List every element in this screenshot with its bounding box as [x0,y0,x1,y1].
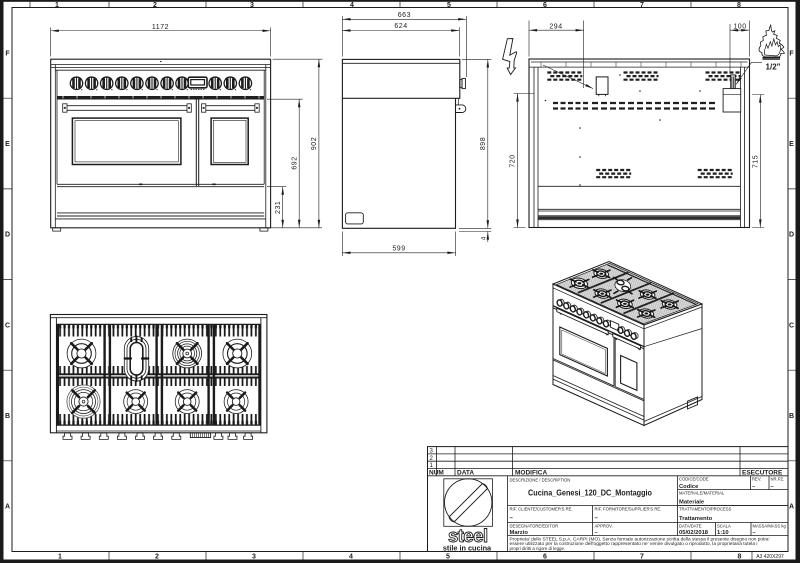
svg-text:7: 7 [640,554,644,561]
svg-text:5: 5 [447,2,451,9]
svg-text:A: A [5,504,10,511]
svg-text:RIF. CLIENTE/CUSTOMER'S RE.: RIF. CLIENTE/CUSTOMER'S RE. [510,507,573,512]
svg-text:3: 3 [252,554,256,561]
svg-text:NUM: NUM [429,470,444,477]
svg-text:2: 2 [155,554,159,561]
svg-text:2: 2 [153,2,157,9]
svg-text:624: 624 [394,23,407,30]
svg-text:F: F [789,50,794,57]
svg-text:DESCRIZIONE / DESCRIPTION: DESCRIZIONE / DESCRIPTION [510,477,571,482]
svg-text:720: 720 [510,154,517,167]
svg-text:C: C [5,322,10,329]
svg-text:C: C [789,322,794,329]
svg-text:4: 4 [349,554,353,561]
svg-text:TRATTAMENTO/PROCESS: TRATTAMENTO/PROCESS [679,507,732,512]
svg-text:294: 294 [549,23,562,30]
svg-text:898: 898 [480,137,487,150]
svg-text:Codice: Codice [679,484,699,490]
svg-text:3: 3 [250,2,254,9]
svg-text:B: B [789,413,794,420]
svg-text:100: 100 [733,23,746,30]
svg-text:MATERIALE/MATERIAL: MATERIALE/MATERIAL [679,490,725,495]
svg-text:8: 8 [738,554,742,561]
svg-text:663: 663 [398,12,411,19]
svg-text:1:10: 1:10 [717,530,729,536]
svg-text:DATA/DATE: DATA/DATE [679,524,702,529]
svg-text:NR.PZ.: NR.PZ. [771,476,785,481]
svg-text:902: 902 [311,137,318,150]
svg-text:SCALA: SCALA [717,524,731,529]
svg-text:231: 231 [275,201,282,214]
svg-text:MASSA/MASS kg: MASSA/MASS kg [753,524,787,529]
svg-text:8: 8 [737,2,741,9]
svg-text:599: 599 [392,245,405,252]
svg-text:Marzio: Marzio [510,530,529,536]
svg-text:Trattamento: Trattamento [679,516,713,522]
svg-text:B: B [5,413,10,420]
svg-text:D: D [789,232,794,239]
svg-text:REV.: REV. [752,476,761,481]
svg-text:Cucina_Genesi_120_DC_Montaggio: Cucina_Genesi_120_DC_Montaggio [528,487,652,497]
svg-text:5: 5 [446,554,450,561]
svg-text:APPROV.: APPROV. [595,524,613,529]
svg-text:stile in cucina: stile in cucina [443,543,492,552]
svg-text:1172: 1172 [152,24,169,31]
svg-text:6: 6 [543,2,547,9]
svg-text:715: 715 [753,155,760,168]
svg-text:05/02/2018: 05/02/2018 [679,530,709,536]
svg-text:MODIFICA: MODIFICA [515,470,547,477]
svg-text:1/2": 1/2" [766,62,781,71]
svg-text:propri diritti a rigore di leg: propri diritti a rigore di legge. [510,546,566,551]
svg-text:1: 1 [55,2,59,9]
svg-text:1: 1 [58,554,62,561]
svg-text:A3 420X297: A3 420X297 [756,554,784,560]
svg-text:E: E [789,141,794,148]
svg-text:CODICE/CODE: CODICE/CODE [679,476,709,481]
svg-text:D: D [5,232,10,239]
svg-text:E: E [5,141,10,148]
svg-text:7: 7 [640,2,644,9]
svg-text:4: 4 [350,2,354,9]
svg-text:RIF. FORNITORE/SUPPLIER'S RE.: RIF. FORNITORE/SUPPLIER'S RE. [595,507,662,512]
svg-text:A: A [789,504,794,511]
svg-text:692: 692 [291,156,298,169]
svg-text:6: 6 [543,554,547,561]
svg-text:DESEGNATORE/EDITOR: DESEGNATORE/EDITOR [510,524,559,529]
svg-text:F: F [5,50,10,57]
svg-text:Materiale: Materiale [679,499,705,505]
svg-text:DATA: DATA [457,470,474,477]
